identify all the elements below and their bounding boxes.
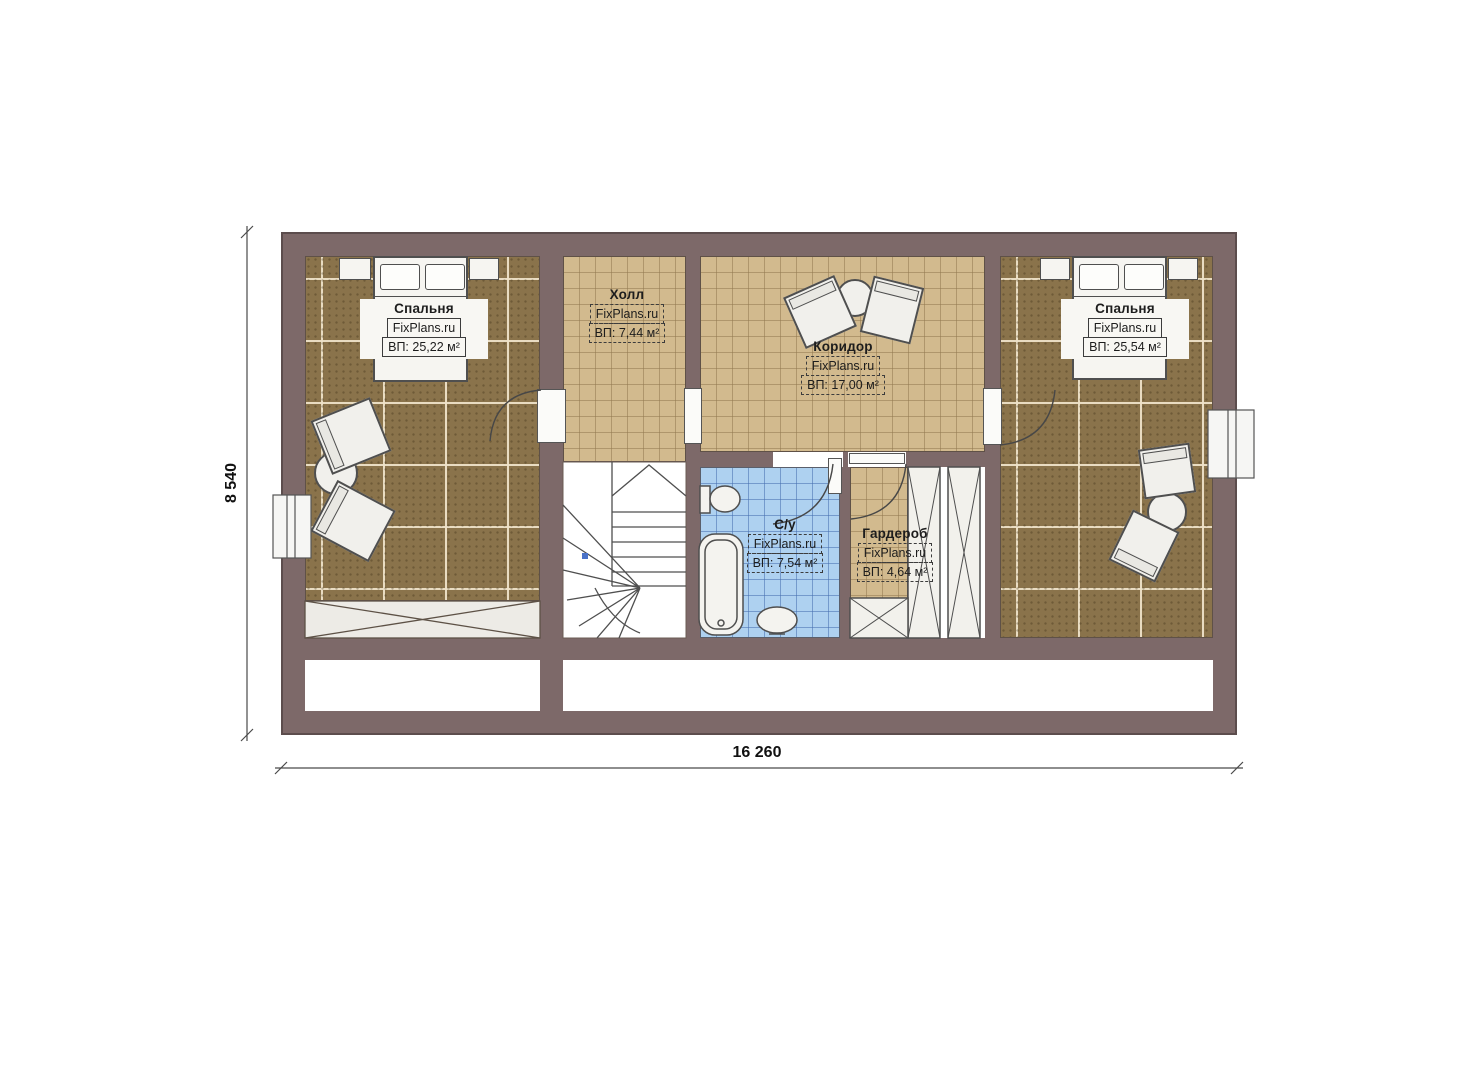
brand-watermark: FixPlans.ru — [590, 304, 665, 324]
room-name: Спальня — [394, 301, 454, 316]
brand-watermark: FixPlans.ru — [858, 543, 933, 563]
room-area: ВП: 25,54 м² — [1083, 337, 1167, 357]
pillow — [1124, 264, 1164, 290]
nightstand — [339, 258, 371, 280]
room-area: ВП: 25,22 м² — [382, 337, 466, 357]
armchair — [1138, 443, 1196, 500]
wall-bedroom-left-hall — [540, 256, 563, 638]
door-leaf-hall-corridor — [684, 388, 702, 444]
brand-watermark: FixPlans.ru — [1088, 318, 1163, 338]
wall-corridor-bedroom-right — [985, 256, 1000, 638]
room-label-bedroom-left: Спальня FixPlans.ru ВП: 25,22 м² — [360, 299, 488, 359]
room-name: Спальня — [1095, 301, 1155, 316]
dimension-height: 8 540 — [223, 448, 241, 518]
room-name: Коридор — [813, 339, 873, 354]
room-label-bathroom: С/у FixPlans.ru ВП: 7,54 м² — [734, 517, 836, 573]
room-area: ВП: 7,44 м² — [589, 323, 666, 343]
nightstand — [1168, 258, 1198, 280]
nightstand — [469, 258, 499, 280]
room-label-wardrobe: Гардероб FixPlans.ru ВП: 4,64 м² — [843, 526, 947, 582]
dimension-width: 16 260 — [700, 744, 814, 762]
room-label-hall: Холл FixPlans.ru ВП: 7,44 м² — [576, 287, 678, 343]
room-area: ВП: 17,00 м² — [801, 375, 885, 395]
room-name: Гардероб — [862, 526, 927, 541]
blanket-edge — [1074, 296, 1165, 297]
floor-plan-page: Спальня FixPlans.ru ВП: 25,22 м² Холл Fi… — [0, 0, 1474, 1080]
brand-watermark: FixPlans.ru — [806, 356, 881, 376]
door-leaf-wardrobe — [849, 453, 905, 464]
pillow — [380, 264, 420, 290]
room-label-corridor: Коридор FixPlans.ru ВП: 17,00 м² — [789, 339, 897, 395]
room-label-bedroom-right: Спальня FixPlans.ru ВП: 25,54 м² — [1061, 299, 1189, 359]
door-leaf-bathroom — [828, 458, 842, 494]
pillow — [425, 264, 465, 290]
room-area: ВП: 7,54 м² — [747, 553, 824, 573]
chair-backrest — [1142, 447, 1187, 464]
wall-interior-south — [305, 638, 1213, 660]
nightstand — [1040, 258, 1070, 280]
door-leaf-bedroom-left — [537, 389, 566, 443]
pillow — [1079, 264, 1119, 290]
blanket-edge — [375, 296, 466, 297]
wall-band-divider — [540, 660, 563, 711]
brand-watermark: FixPlans.ru — [748, 534, 823, 554]
room-name: Холл — [610, 287, 645, 302]
door-leaf-bedroom-right — [983, 388, 1002, 445]
room-name: С/у — [774, 517, 796, 532]
room-area: ВП: 4,64 м² — [857, 562, 934, 582]
wall-hall-corridor — [686, 256, 700, 638]
brand-watermark: FixPlans.ru — [387, 318, 462, 338]
